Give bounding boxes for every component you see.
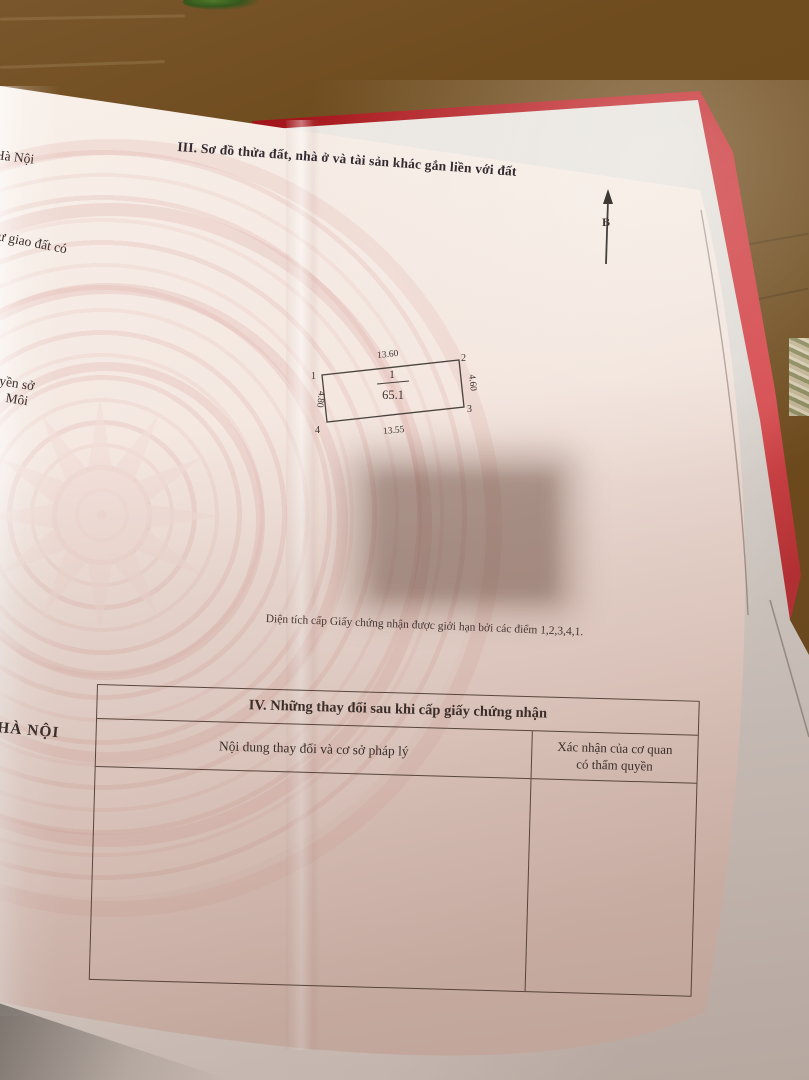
left-fragment-moi: Môi [4, 390, 29, 409]
photo-canvas: III. Sơ đồ thửa đất, nhà ở và tài sản kh… [0, 0, 809, 1080]
corner-4: 4 [315, 425, 320, 436]
corner-3: 3 [467, 404, 472, 415]
col-header-authority-line2: có thẩm quyền [576, 756, 653, 774]
dim-bottom: 13.55 [383, 425, 406, 437]
corner-1: 1 [311, 371, 316, 382]
north-arrow: B [585, 180, 635, 275]
section4-table: IV. Những thay đổi sau khi cấp giấy chứn… [89, 684, 700, 997]
empty-cell-authority [526, 779, 697, 996]
phone-shadow-core [372, 472, 557, 600]
page-curve-highlight [0, 86, 60, 1016]
parcel-area: 65.1 [382, 388, 404, 402]
dim-left: 4.80 [314, 390, 326, 408]
col-header-authority: Xác nhận của cơ quan có thẩm quyền [532, 731, 698, 783]
dim-top: 13.60 [377, 349, 400, 361]
section4-empty-row [90, 767, 697, 996]
corner-2: 2 [461, 353, 466, 364]
dim-right: 4.60 [466, 374, 478, 392]
north-arrow-head [603, 189, 613, 204]
empty-cell-change-content [90, 767, 532, 991]
fraction-bar [377, 381, 409, 384]
col-header-authority-line1: Xác nhận của cơ quan [557, 739, 673, 758]
north-label: B [602, 215, 610, 229]
parcel-diagram: 1 2 3 4 13.60 4.60 13.55 4.80 1 65.1 [280, 330, 500, 455]
parcel-number: 1 [389, 369, 395, 381]
